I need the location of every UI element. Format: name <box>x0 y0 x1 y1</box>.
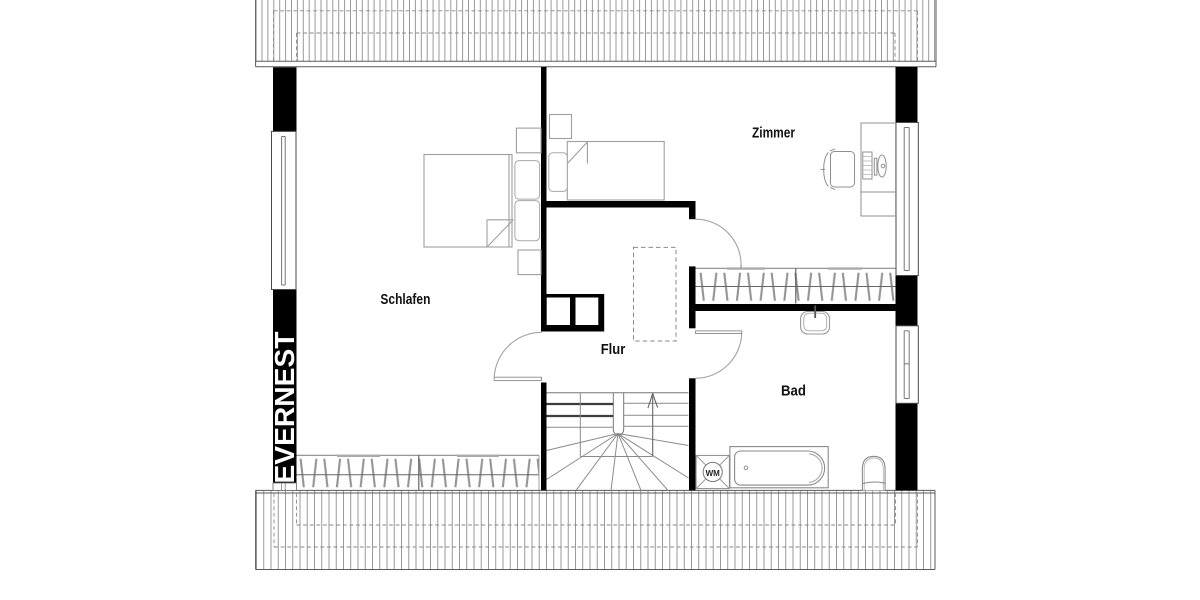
svg-text:WM: WM <box>706 468 720 478</box>
svg-text:Bad: Bad <box>781 384 806 400</box>
svg-text:Zimmer: Zimmer <box>752 126 795 142</box>
svg-text:Flur: Flur <box>601 342 626 358</box>
svg-text:EVERNEST: EVERNEST <box>269 331 300 483</box>
svg-text:Schlafen: Schlafen <box>380 292 430 308</box>
